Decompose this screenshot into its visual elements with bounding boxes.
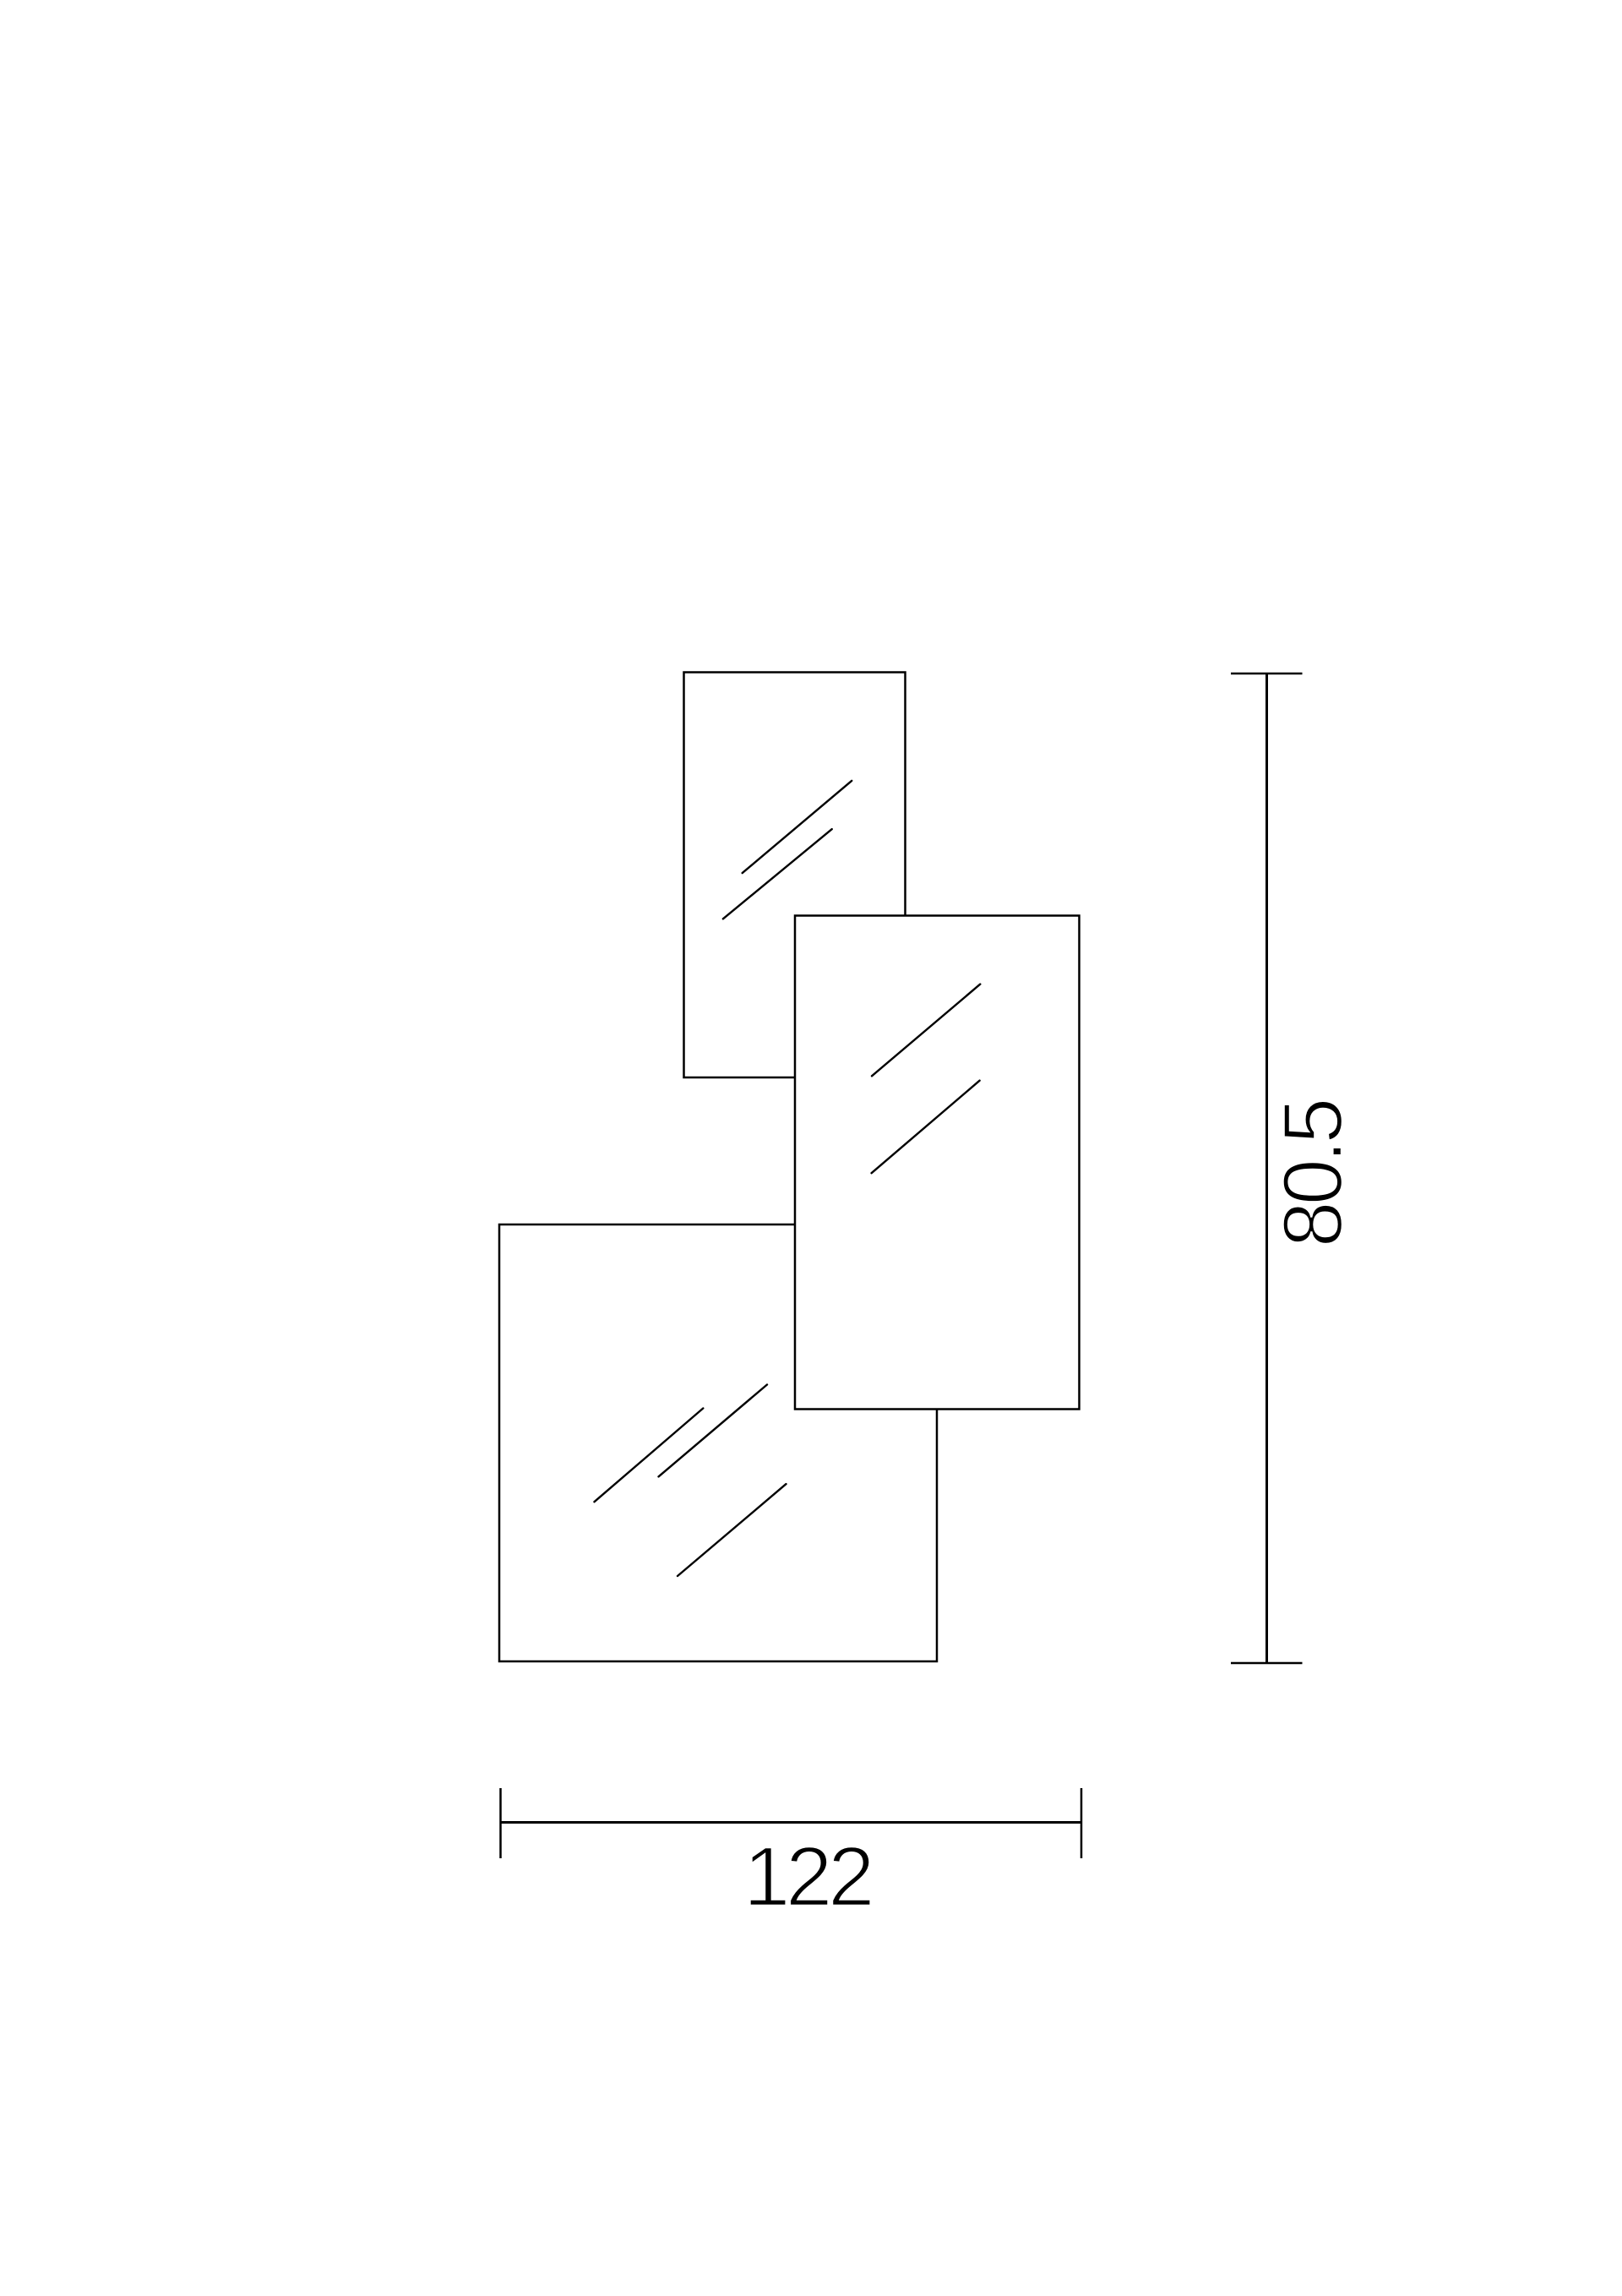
svg-text:80.5: 80.5 (1265, 1101, 1359, 1248)
svg-text:122: 122 (743, 1830, 871, 1924)
